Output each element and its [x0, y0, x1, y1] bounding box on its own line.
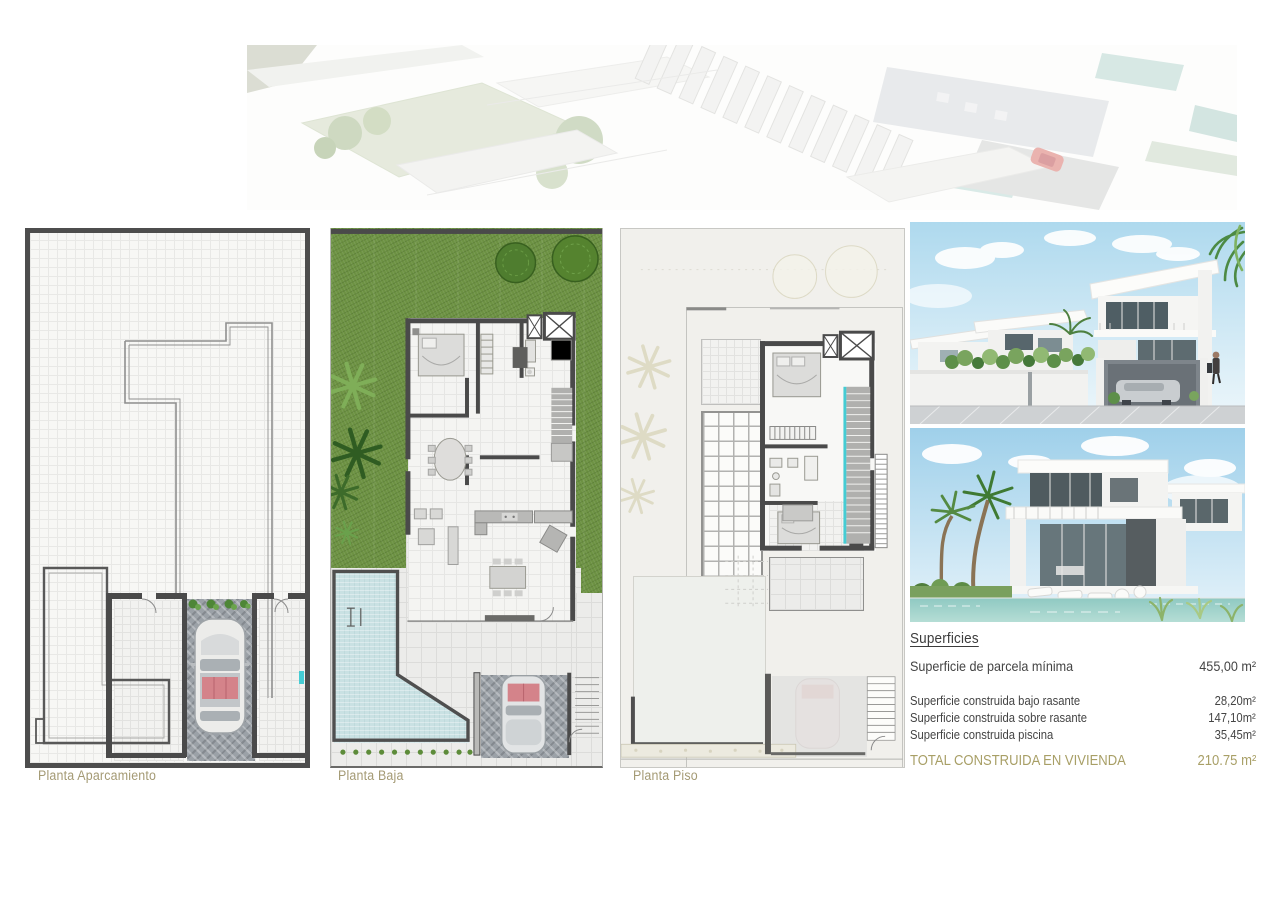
terrace-shadow-grid [769, 557, 864, 611]
boundary-wall [910, 370, 1088, 408]
table-row: Superficie de parcela mínima 455,00 m² [910, 658, 1256, 674]
render-street-view [910, 222, 1245, 424]
row-label: Superficie de parcela mínima [910, 658, 1073, 674]
garage-entry-room [259, 601, 305, 761]
row-value: 28,20m² [1215, 693, 1256, 710]
row-value: 35,45m² [1215, 727, 1256, 744]
driveway-paving [481, 675, 569, 758]
plan-label-baja: Planta Baja [338, 768, 404, 783]
faint-palm-icon [621, 346, 670, 513]
row-label: Superficie construida piscina [910, 727, 1053, 744]
plan-piso [620, 228, 905, 768]
row-label: Superficie construida sobre rasante [910, 710, 1087, 727]
row-value: 455,00 m² [1199, 658, 1256, 674]
superficies-panel: Superficies Superficie de parcela mínima… [910, 630, 1256, 769]
row-label: Superficie construida bajo rasante [910, 693, 1080, 710]
row-value: 147,10m² [1208, 710, 1256, 727]
house-floor [408, 318, 576, 623]
total-label: TOTAL CONSTRUIDA EN VIVIENDA [910, 753, 1126, 769]
render-pool-view [910, 428, 1245, 622]
tree-icon [496, 236, 598, 283]
superficies-title: Superficies [910, 630, 979, 647]
garage-with-car [1096, 358, 1208, 408]
pergola-grid [701, 411, 763, 579]
garage-side-room [114, 601, 183, 761]
palm-tree-icon [331, 364, 380, 544]
table-row: Superficie construida sobre rasante 147,… [910, 710, 1256, 727]
plan-label-aparcamiento: Planta Aparcamiento [38, 768, 156, 783]
banner-pergola-icon [635, 45, 913, 192]
landing-room [769, 501, 864, 551]
roof-terrace-tiles [701, 339, 761, 405]
total-value: 210.75 m² [1197, 753, 1256, 769]
plan-aparcamiento [25, 228, 310, 768]
aerial-banner-graphic [247, 45, 1237, 210]
driveway-paving [187, 599, 255, 761]
aerial-banner-image [247, 45, 1237, 210]
street-pavement [910, 406, 1245, 424]
total-row: TOTAL CONSTRUIDA EN VIVIENDA 210.75 m² [910, 753, 1256, 769]
plan-label-piso: Planta Piso [633, 768, 698, 783]
faint-tree-icon [773, 246, 877, 299]
plan-baja [330, 228, 603, 768]
side-stairs-area [576, 593, 603, 768]
driveway-below [772, 676, 867, 757]
architectural-plan-sheet: Superficies Superficie de parcela mínima… [0, 0, 1280, 905]
table-row: Superficie construida bajo rasante 28,20… [910, 693, 1256, 710]
pool-below-outline [633, 576, 766, 751]
table-row: Superficie construida piscina 35,45m² [910, 727, 1256, 744]
